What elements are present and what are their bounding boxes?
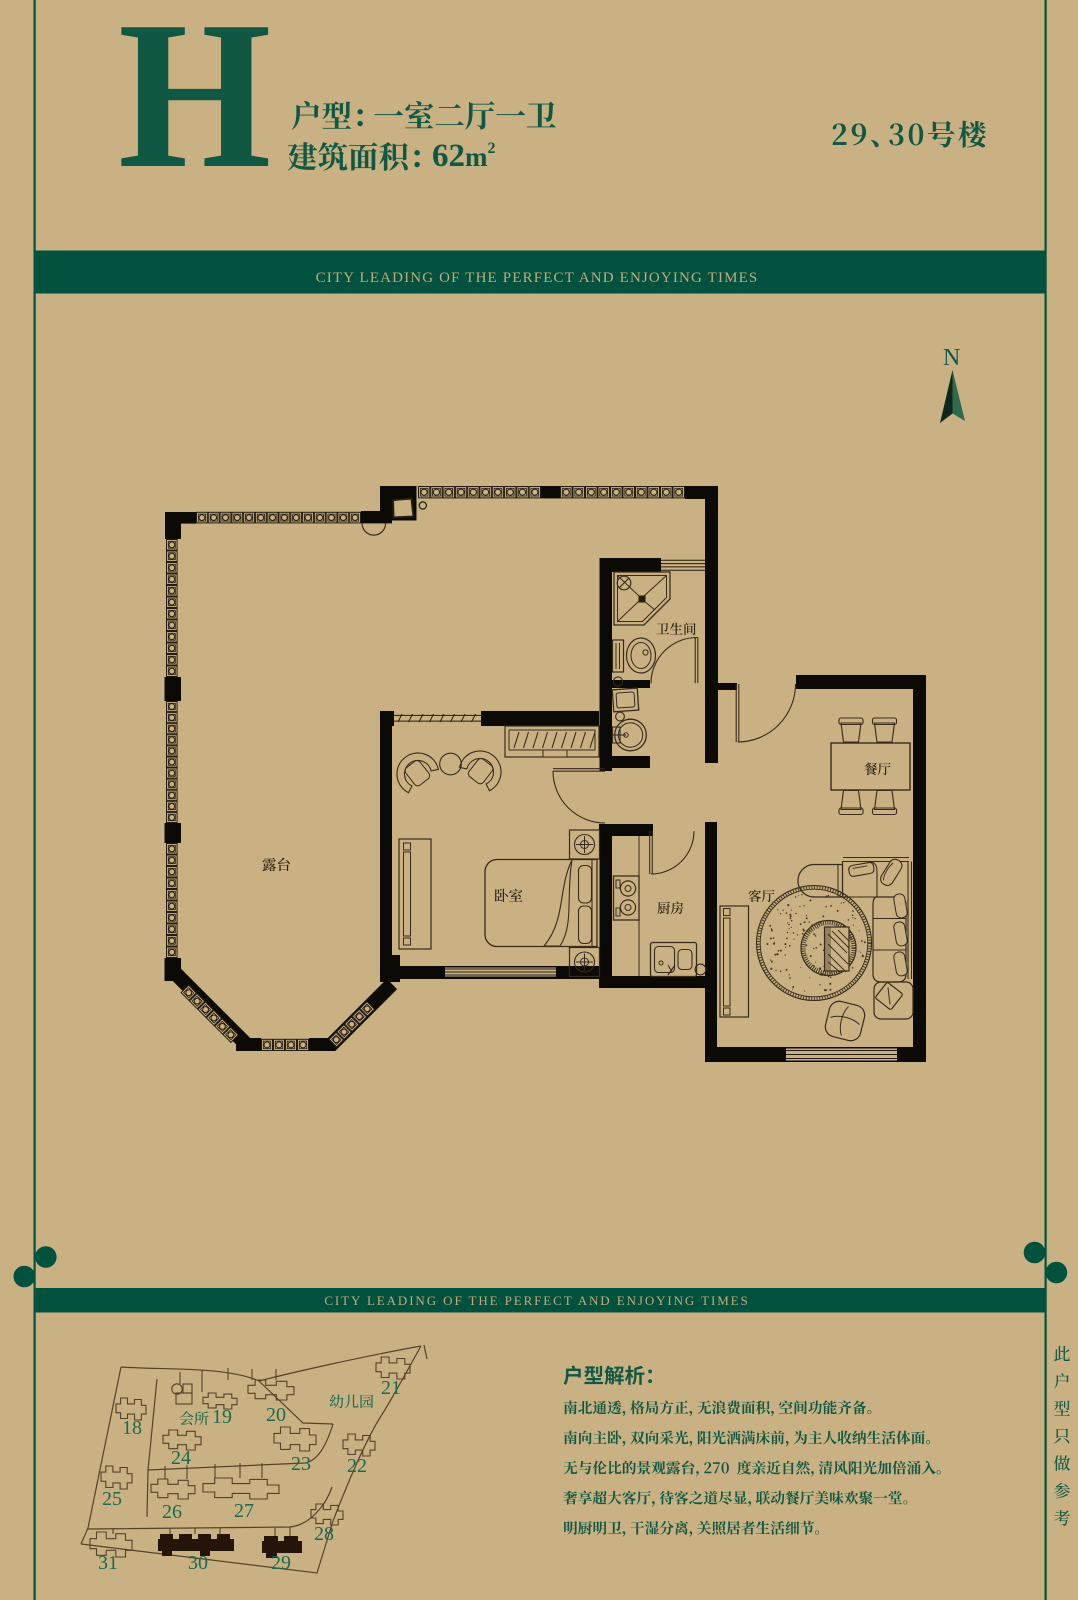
svg-text:CITY LEADING OF THE PERFECT AN: CITY LEADING OF THE PERFECT AND ENJOYING… <box>324 1293 749 1308</box>
svg-text:30: 30 <box>188 1552 208 1574</box>
svg-text:28: 28 <box>314 1523 334 1545</box>
svg-text:N: N <box>943 345 960 371</box>
svg-text:21: 21 <box>381 1377 401 1399</box>
svg-text:31: 31 <box>98 1552 118 1574</box>
svg-text:H: H <box>118 0 271 213</box>
svg-text:19: 19 <box>212 1406 232 1428</box>
svg-text:18: 18 <box>122 1417 142 1439</box>
svg-text:20: 20 <box>266 1404 286 1426</box>
svg-text:24: 24 <box>171 1447 191 1469</box>
svg-text:CITY LEADING OF THE PERFECT AN: CITY LEADING OF THE PERFECT AND ENJOYING… <box>316 270 759 286</box>
svg-text:29: 29 <box>271 1552 291 1574</box>
svg-text:22: 22 <box>347 1455 367 1477</box>
svg-text:26: 26 <box>162 1501 182 1523</box>
svg-text:62m2: 62m2 <box>432 138 496 174</box>
svg-text:25: 25 <box>102 1488 122 1510</box>
svg-text:27: 27 <box>234 1500 254 1522</box>
svg-text:23: 23 <box>291 1453 311 1475</box>
